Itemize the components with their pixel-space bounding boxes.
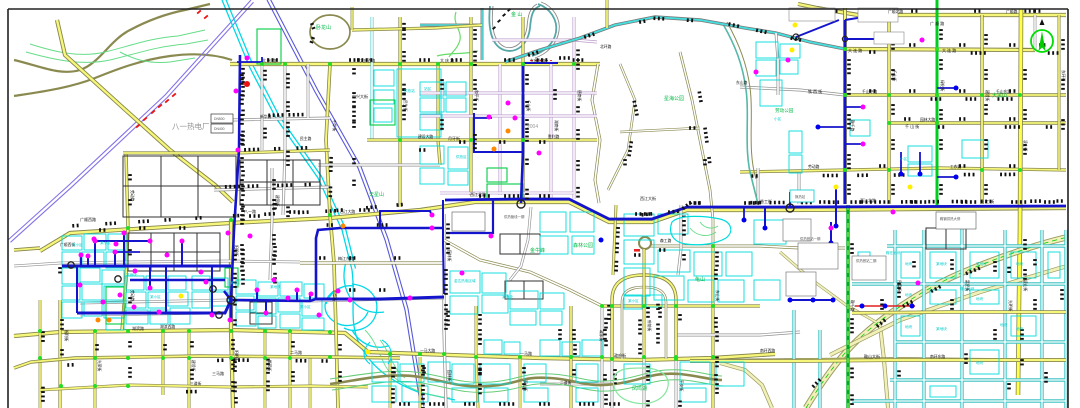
svg-text:地块: 地块	[905, 261, 913, 266]
svg-text:胜利路: 胜利路	[548, 134, 560, 139]
svg-text:换热站: 换热站	[795, 194, 806, 199]
svg-text:供热首站二期: 供热首站二期	[856, 258, 877, 263]
svg-text:工农路: 工农路	[950, 164, 962, 169]
svg-text:地块: 地块	[905, 292, 913, 297]
svg-text:湖滨西路: 湖滨西路	[160, 324, 175, 329]
svg-text:建设街: 建设街	[985, 90, 990, 102]
svg-text:凤鸣湖: 凤鸣湖	[632, 385, 647, 392]
svg-text:梅江东路: 梅江东路	[338, 255, 354, 261]
svg-text:民富街: 民富街	[897, 280, 902, 292]
svg-text:一马路: 一马路	[520, 350, 532, 356]
svg-text:湖南街: 湖南街	[554, 120, 559, 132]
svg-text:福利街: 福利街	[64, 330, 69, 342]
svg-text:八一路: 八一路	[244, 208, 256, 214]
svg-text:西江大街: 西江大街	[640, 195, 656, 201]
svg-text:地块: 地块	[976, 296, 984, 301]
svg-text:某小区: 某小区	[230, 280, 241, 285]
svg-text:政府街: 政府街	[614, 352, 626, 358]
svg-text:绿化街: 绿化街	[940, 80, 945, 92]
svg-text:大 连 路: 大 连 路	[848, 47, 862, 53]
svg-text:某小区: 某小区	[100, 240, 111, 245]
svg-text:DN400: DN400	[214, 127, 225, 131]
svg-text:劳动公园: 劳动公园	[775, 107, 794, 114]
svg-text:某小区: 某小区	[150, 294, 161, 299]
svg-text:劳动路: 劳动路	[808, 164, 820, 169]
svg-text:园林大路: 园林大路	[920, 117, 935, 122]
svg-text:富民街: 富民街	[965, 280, 970, 292]
svg-text:某地块: 某地块	[936, 261, 947, 266]
svg-text:某地块: 某地块	[936, 326, 947, 331]
svg-text:一马大路: 一马大路	[420, 348, 435, 353]
svg-text:繁荣街: 繁荣街	[267, 360, 272, 372]
svg-text:大 连 路: 大 连 路	[942, 47, 956, 53]
svg-text:光明街: 光明街	[1008, 300, 1013, 312]
svg-text:凌山街: 凌山街	[1023, 280, 1028, 292]
svg-text:供热管线一期: 供热管线一期	[504, 214, 525, 219]
svg-text:政东街: 政东街	[599, 330, 604, 342]
svg-text:千山街: 千山街	[892, 70, 897, 82]
svg-text:民主路: 民主路	[300, 136, 312, 141]
svg-text:三马路: 三马路	[212, 370, 224, 376]
svg-text:千山街: 千山街	[526, 100, 531, 112]
svg-text:星海公园: 星海公园	[664, 95, 684, 102]
svg-text:某地块: 某地块	[502, 294, 513, 299]
svg-text:建设街: 建设街	[191, 360, 196, 372]
svg-text:鞍千路: 鞍千路	[850, 300, 855, 312]
svg-text:森林公园: 森林公园	[573, 242, 593, 249]
svg-text:德南街: 德南街	[577, 90, 582, 102]
svg-text:地块: 地块	[1016, 326, 1024, 331]
svg-text:光荣街: 光荣街	[97, 360, 102, 372]
svg-text:香 工 街: 香 工 街	[980, 198, 994, 204]
svg-text:西江北路: 西江北路	[470, 191, 486, 197]
svg-text:东山路: 东山路	[736, 80, 748, 85]
svg-text:供热区: 供热区	[456, 154, 467, 159]
svg-text:双山街: 双山街	[523, 380, 528, 392]
svg-text:中华街: 中华街	[332, 120, 337, 132]
svg-text:平安街: 平安街	[679, 380, 684, 392]
svg-text:劳动路: 劳动路	[130, 290, 135, 302]
svg-text:西江北路: 西江北路	[860, 197, 876, 203]
svg-text:小区: 小区	[900, 156, 908, 161]
svg-text:广顺西路: 广顺西路	[80, 216, 96, 222]
svg-text:供热首站一期: 供热首站一期	[800, 236, 821, 241]
svg-text:阳明街: 阳明街	[234, 350, 239, 362]
svg-text:森工路: 森工路	[660, 238, 672, 243]
svg-text:千山东路: 千山东路	[996, 89, 1011, 94]
svg-text:八一热电厂: 八一热电厂	[172, 121, 210, 131]
svg-text:园林街: 园林街	[447, 250, 452, 262]
svg-text:某地块: 某地块	[126, 272, 137, 277]
svg-text:东环街: 东环街	[1061, 70, 1066, 82]
svg-text:某小区: 某小区	[300, 304, 311, 309]
svg-text:2004: 2004	[527, 124, 538, 130]
svg-text:金达热电区域: 金达热电区域	[454, 278, 476, 283]
svg-text:北环路: 北环路	[600, 44, 612, 49]
svg-text:地块: 地块	[1016, 261, 1024, 266]
svg-text:供热站: 供热站	[404, 88, 415, 93]
svg-text:DN500: DN500	[214, 117, 225, 121]
svg-text:金牛峰: 金牛峰	[530, 247, 545, 254]
svg-text:大 庆 路: 大 庆 路	[440, 57, 454, 63]
svg-text:大 庆 路: 大 庆 路	[262, 57, 276, 63]
svg-text:新华路: 新华路	[260, 114, 272, 119]
svg-text:地块: 地块	[1000, 322, 1008, 327]
svg-text:鞍钢供热大修: 鞍钢供热大修	[940, 216, 961, 221]
svg-text:某小区: 某小区	[628, 298, 639, 303]
svg-text:阳明街: 阳明街	[234, 245, 239, 257]
svg-text:金 山: 金 山	[511, 11, 522, 18]
svg-text:东山街: 东山街	[715, 290, 720, 302]
svg-text:二道街: 二道街	[560, 380, 572, 385]
svg-text:民生街: 民生街	[403, 100, 408, 112]
svg-text:地块: 地块	[976, 360, 984, 365]
svg-text:鞍千路: 鞍千路	[850, 120, 855, 132]
svg-text:鞍在地块: 鞍在地块	[886, 250, 901, 255]
svg-text:龟山: 龟山	[695, 276, 705, 283]
svg-text:站区: 站区	[424, 86, 432, 91]
svg-text:园林街: 园林街	[447, 370, 452, 382]
svg-text:香工街: 香工街	[760, 198, 772, 204]
svg-text:和平街: 和平街	[474, 90, 479, 102]
svg-text:三道街: 三道街	[190, 381, 202, 386]
svg-text:广 顺 路: 广 顺 路	[930, 20, 944, 26]
svg-text:千 山 街: 千 山 街	[905, 123, 919, 129]
svg-text:某地块: 某地块	[976, 261, 987, 266]
svg-text:天星山: 天星山	[369, 191, 384, 198]
svg-text:月牙街: 月牙街	[448, 135, 460, 141]
svg-text:鞍山大街: 鞍山大街	[864, 353, 880, 359]
svg-text:湖滨路: 湖滨路	[132, 325, 144, 331]
svg-text:西江大路: 西江大路	[340, 209, 355, 214]
svg-text:地块: 地块	[905, 324, 913, 329]
svg-text:凌山街: 凌山街	[1023, 140, 1028, 152]
svg-text:大庆东路: 大庆东路	[530, 58, 545, 63]
svg-text:中华街: 中华街	[332, 290, 337, 302]
svg-text:南环东路: 南环东路	[930, 354, 945, 359]
svg-text:铁 西 街: 铁 西 街	[808, 88, 822, 94]
svg-text:中兴大街: 中兴大街	[352, 93, 368, 99]
svg-text:某地块: 某地块	[270, 284, 281, 289]
svg-text:二马路: 二马路	[290, 349, 302, 355]
svg-text:劳动路: 劳动路	[130, 190, 135, 202]
svg-text:大庆西路: 大庆西路	[360, 58, 375, 63]
svg-text:府前街: 府前街	[647, 320, 652, 332]
svg-text:建设大路: 建设大路	[418, 134, 433, 139]
svg-text:卧龙山: 卧龙山	[316, 24, 331, 31]
svg-text:南环西路: 南环西路	[760, 348, 775, 353]
svg-text:建国街: 建国街	[275, 195, 280, 207]
svg-text:小区: 小区	[774, 116, 782, 121]
svg-text:千山中路: 千山中路	[862, 89, 877, 94]
svg-text:某小区: 某小区	[72, 242, 83, 247]
